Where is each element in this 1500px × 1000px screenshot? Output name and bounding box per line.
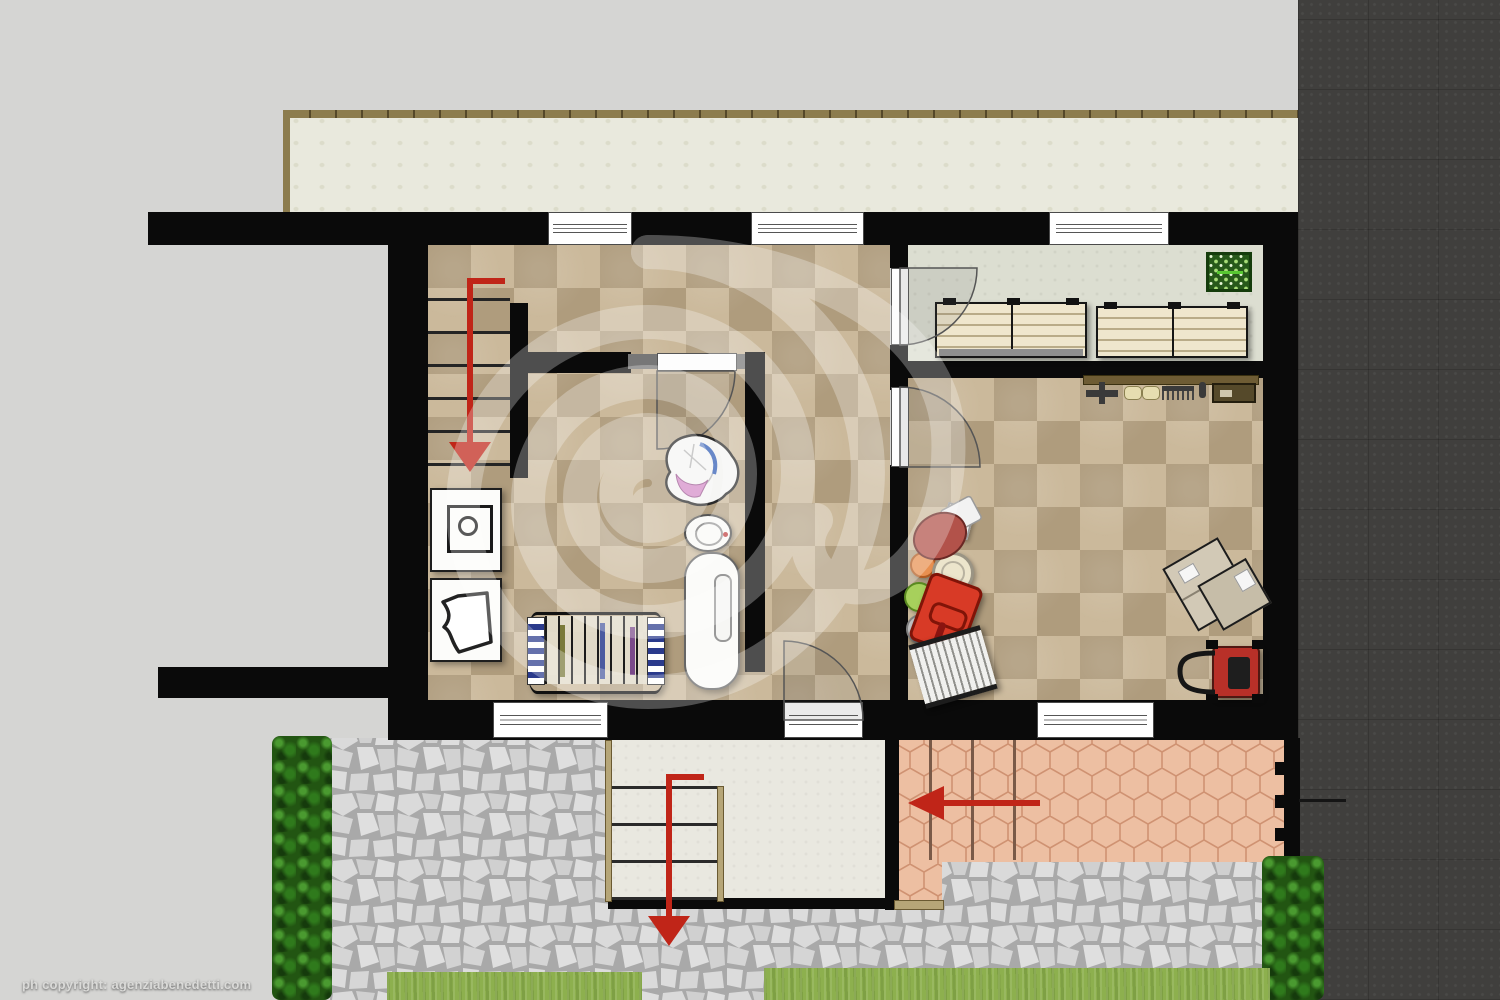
tool-bottle-2 xyxy=(1142,386,1160,400)
stairwell-wall xyxy=(510,303,528,478)
hanging-cloth-olive xyxy=(560,625,565,677)
patio-descent-arrow-head xyxy=(908,786,944,820)
bathroom-wall-north xyxy=(527,352,631,373)
upper-terrace-deck xyxy=(283,110,1298,212)
toilet-flush-dot xyxy=(723,532,728,537)
hallway-wall-seg3 xyxy=(890,465,908,700)
hedge-left xyxy=(272,736,332,1000)
exterior-stair-treads xyxy=(612,786,718,902)
patio-descent-arrow-shaft xyxy=(944,800,1040,806)
deck-railing-left xyxy=(283,110,290,212)
window-north-1 xyxy=(548,212,632,245)
wrench-tool-bar xyxy=(1086,390,1118,397)
tool-hook xyxy=(1199,382,1206,398)
door-glass xyxy=(789,715,858,726)
bathtub-ledge xyxy=(714,574,732,642)
shelf-bracket xyxy=(1227,302,1240,309)
exterior-descent-arrow-shaft xyxy=(666,774,672,920)
window-north-2 xyxy=(751,212,864,245)
shelf-bracket xyxy=(943,298,956,305)
green-pegboard xyxy=(1206,252,1252,292)
box-label xyxy=(1233,569,1256,593)
drying-rack-end-right xyxy=(647,617,665,685)
shelf-bracket xyxy=(1066,298,1079,305)
gate-line xyxy=(1299,799,1346,802)
mower-wheel-1 xyxy=(1206,640,1218,649)
hallway-wall-seg1 xyxy=(890,245,908,268)
window-south-1 xyxy=(493,702,608,738)
fence-post-2 xyxy=(1275,795,1286,808)
asphalt-road xyxy=(1298,0,1500,1000)
window-north-3 xyxy=(1049,212,1169,245)
window-south-2 xyxy=(1037,702,1154,738)
patio-wood-rail xyxy=(894,900,944,910)
window-glass xyxy=(1044,715,1148,726)
hedge-right xyxy=(1262,856,1324,1000)
window-glass xyxy=(553,224,627,234)
drying-rack-end-left xyxy=(527,617,545,685)
vice-jaw xyxy=(1220,390,1232,397)
bathroom-door-leaf xyxy=(657,353,737,371)
lawn-mower-engine xyxy=(1228,657,1250,689)
bathtub xyxy=(684,552,740,690)
box-label xyxy=(1178,563,1201,584)
annex-wall-bottom xyxy=(158,667,392,698)
mower-wheel-3 xyxy=(1206,694,1218,703)
landing-wall-right xyxy=(885,740,899,910)
window-glass xyxy=(1056,224,1162,234)
tool-bottle-1 xyxy=(1124,386,1142,400)
toilet xyxy=(684,514,732,552)
lawn-strip-1 xyxy=(387,972,642,1000)
bench-vice xyxy=(1212,383,1256,403)
landing-wood-rail-left xyxy=(605,740,612,902)
bathroom-wall-east xyxy=(745,352,765,672)
shelf-bracket xyxy=(1168,302,1181,309)
rake-tool-teeth xyxy=(1162,391,1194,400)
washing-machine xyxy=(430,488,502,572)
shelf-shadow xyxy=(939,349,1083,356)
landing-wood-rail-right xyxy=(717,786,724,902)
toilet-bowl xyxy=(695,522,723,546)
boundary-fence xyxy=(1284,738,1300,864)
storage-door-leaf xyxy=(891,268,909,345)
shelf-bracket xyxy=(1007,298,1020,305)
interior-descent-arrow-head xyxy=(449,442,491,472)
laundry-sink xyxy=(430,578,502,662)
fence-post-3 xyxy=(1275,828,1286,841)
floor-plan-canvas: ph copyright: agenziabenedetti.com xyxy=(0,0,1500,1000)
wood-shelf-unit-2 xyxy=(1096,306,1248,358)
window-glass xyxy=(758,224,858,234)
fence-post-1 xyxy=(1275,762,1286,775)
hanging-cloth-blue xyxy=(600,623,605,679)
wall-west xyxy=(388,212,428,740)
washing-machine-drum-icon xyxy=(458,516,478,536)
window-glass xyxy=(500,715,602,726)
pegboard-rail xyxy=(1217,271,1243,274)
hanging-cloth-purple xyxy=(630,627,635,675)
drying-rack xyxy=(527,612,665,694)
mower-wheel-4 xyxy=(1252,694,1264,703)
copyright-text: ph copyright: agenziabenedetti.com xyxy=(22,977,251,992)
exterior-south-door-leaf xyxy=(784,702,863,738)
shelf-divider xyxy=(1172,308,1174,356)
deck-railing-top xyxy=(283,110,1298,118)
annex-wall-top xyxy=(148,212,392,245)
lawn-mower-body xyxy=(1212,646,1260,698)
workshop-door-leaf xyxy=(891,387,909,467)
shelf-bracket xyxy=(1104,302,1117,309)
mower-wheel-2 xyxy=(1252,640,1264,649)
exterior-descent-arrow-head xyxy=(648,916,690,946)
wood-shelf-unit-1 xyxy=(935,302,1087,358)
interior-descent-arrow-shaft xyxy=(467,278,473,448)
washing-machine-door-frame xyxy=(447,505,493,553)
lawn-strip-2 xyxy=(764,968,1270,1000)
wall-east xyxy=(1263,212,1298,740)
